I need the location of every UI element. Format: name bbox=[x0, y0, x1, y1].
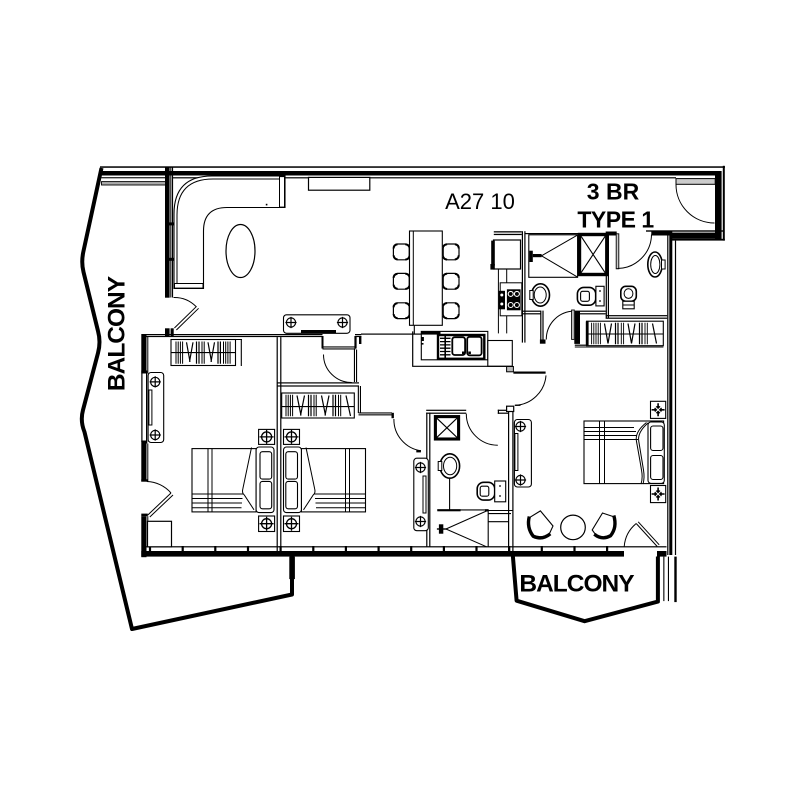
svg-text:BALCONY: BALCONY bbox=[519, 571, 634, 598]
svg-text:3 BR: 3 BR bbox=[587, 179, 640, 205]
svg-text:A27 10: A27 10 bbox=[445, 189, 515, 214]
svg-text:TYPE 1: TYPE 1 bbox=[577, 207, 654, 233]
svg-text:BALCONY: BALCONY bbox=[104, 276, 131, 391]
